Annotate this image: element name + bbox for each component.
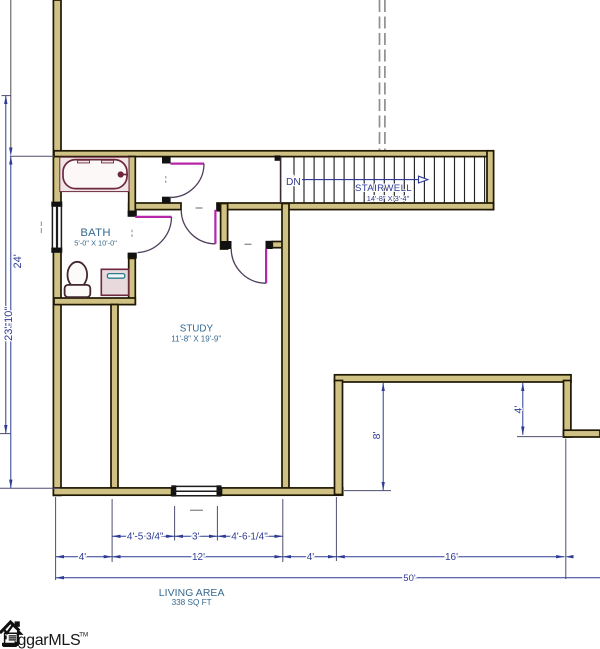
svg-text:4': 4' [79,552,87,563]
svg-text:3': 3' [192,532,200,543]
svg-text:23'-10": 23'-10" [3,307,15,341]
svg-text:4'-6 1/4": 4'-6 1/4" [231,532,268,543]
svg-text:338 SQ FT: 338 SQ FT [172,598,212,607]
svg-text:24': 24' [12,254,24,268]
svg-text:14'-8" X 3'-4": 14'-8" X 3'-4" [367,194,410,203]
svg-text:16': 16' [445,552,458,563]
svg-text:DN: DN [286,177,301,188]
svg-text:TM: TM [79,632,88,639]
svg-text:11'-8" X 19'-9": 11'-8" X 19'-9" [171,334,221,343]
svg-text:50': 50' [403,573,416,584]
svg-text:12': 12' [192,552,205,563]
svg-text:4': 4' [307,552,315,563]
svg-text:4'-5 3/4": 4'-5 3/4" [127,532,164,543]
svg-text:ggarMLS: ggarMLS [18,632,81,649]
svg-text:4': 4' [513,406,525,414]
svg-text:BATH: BATH [80,227,111,239]
svg-text:5'-0" X 10'-0": 5'-0" X 10'-0" [74,238,117,247]
svg-text:STUDY: STUDY [180,324,214,335]
svg-text:8': 8' [371,431,383,439]
svg-text:LIVING AREA: LIVING AREA [159,588,225,599]
svg-text:STAIRWELL: STAIRWELL [355,183,412,194]
